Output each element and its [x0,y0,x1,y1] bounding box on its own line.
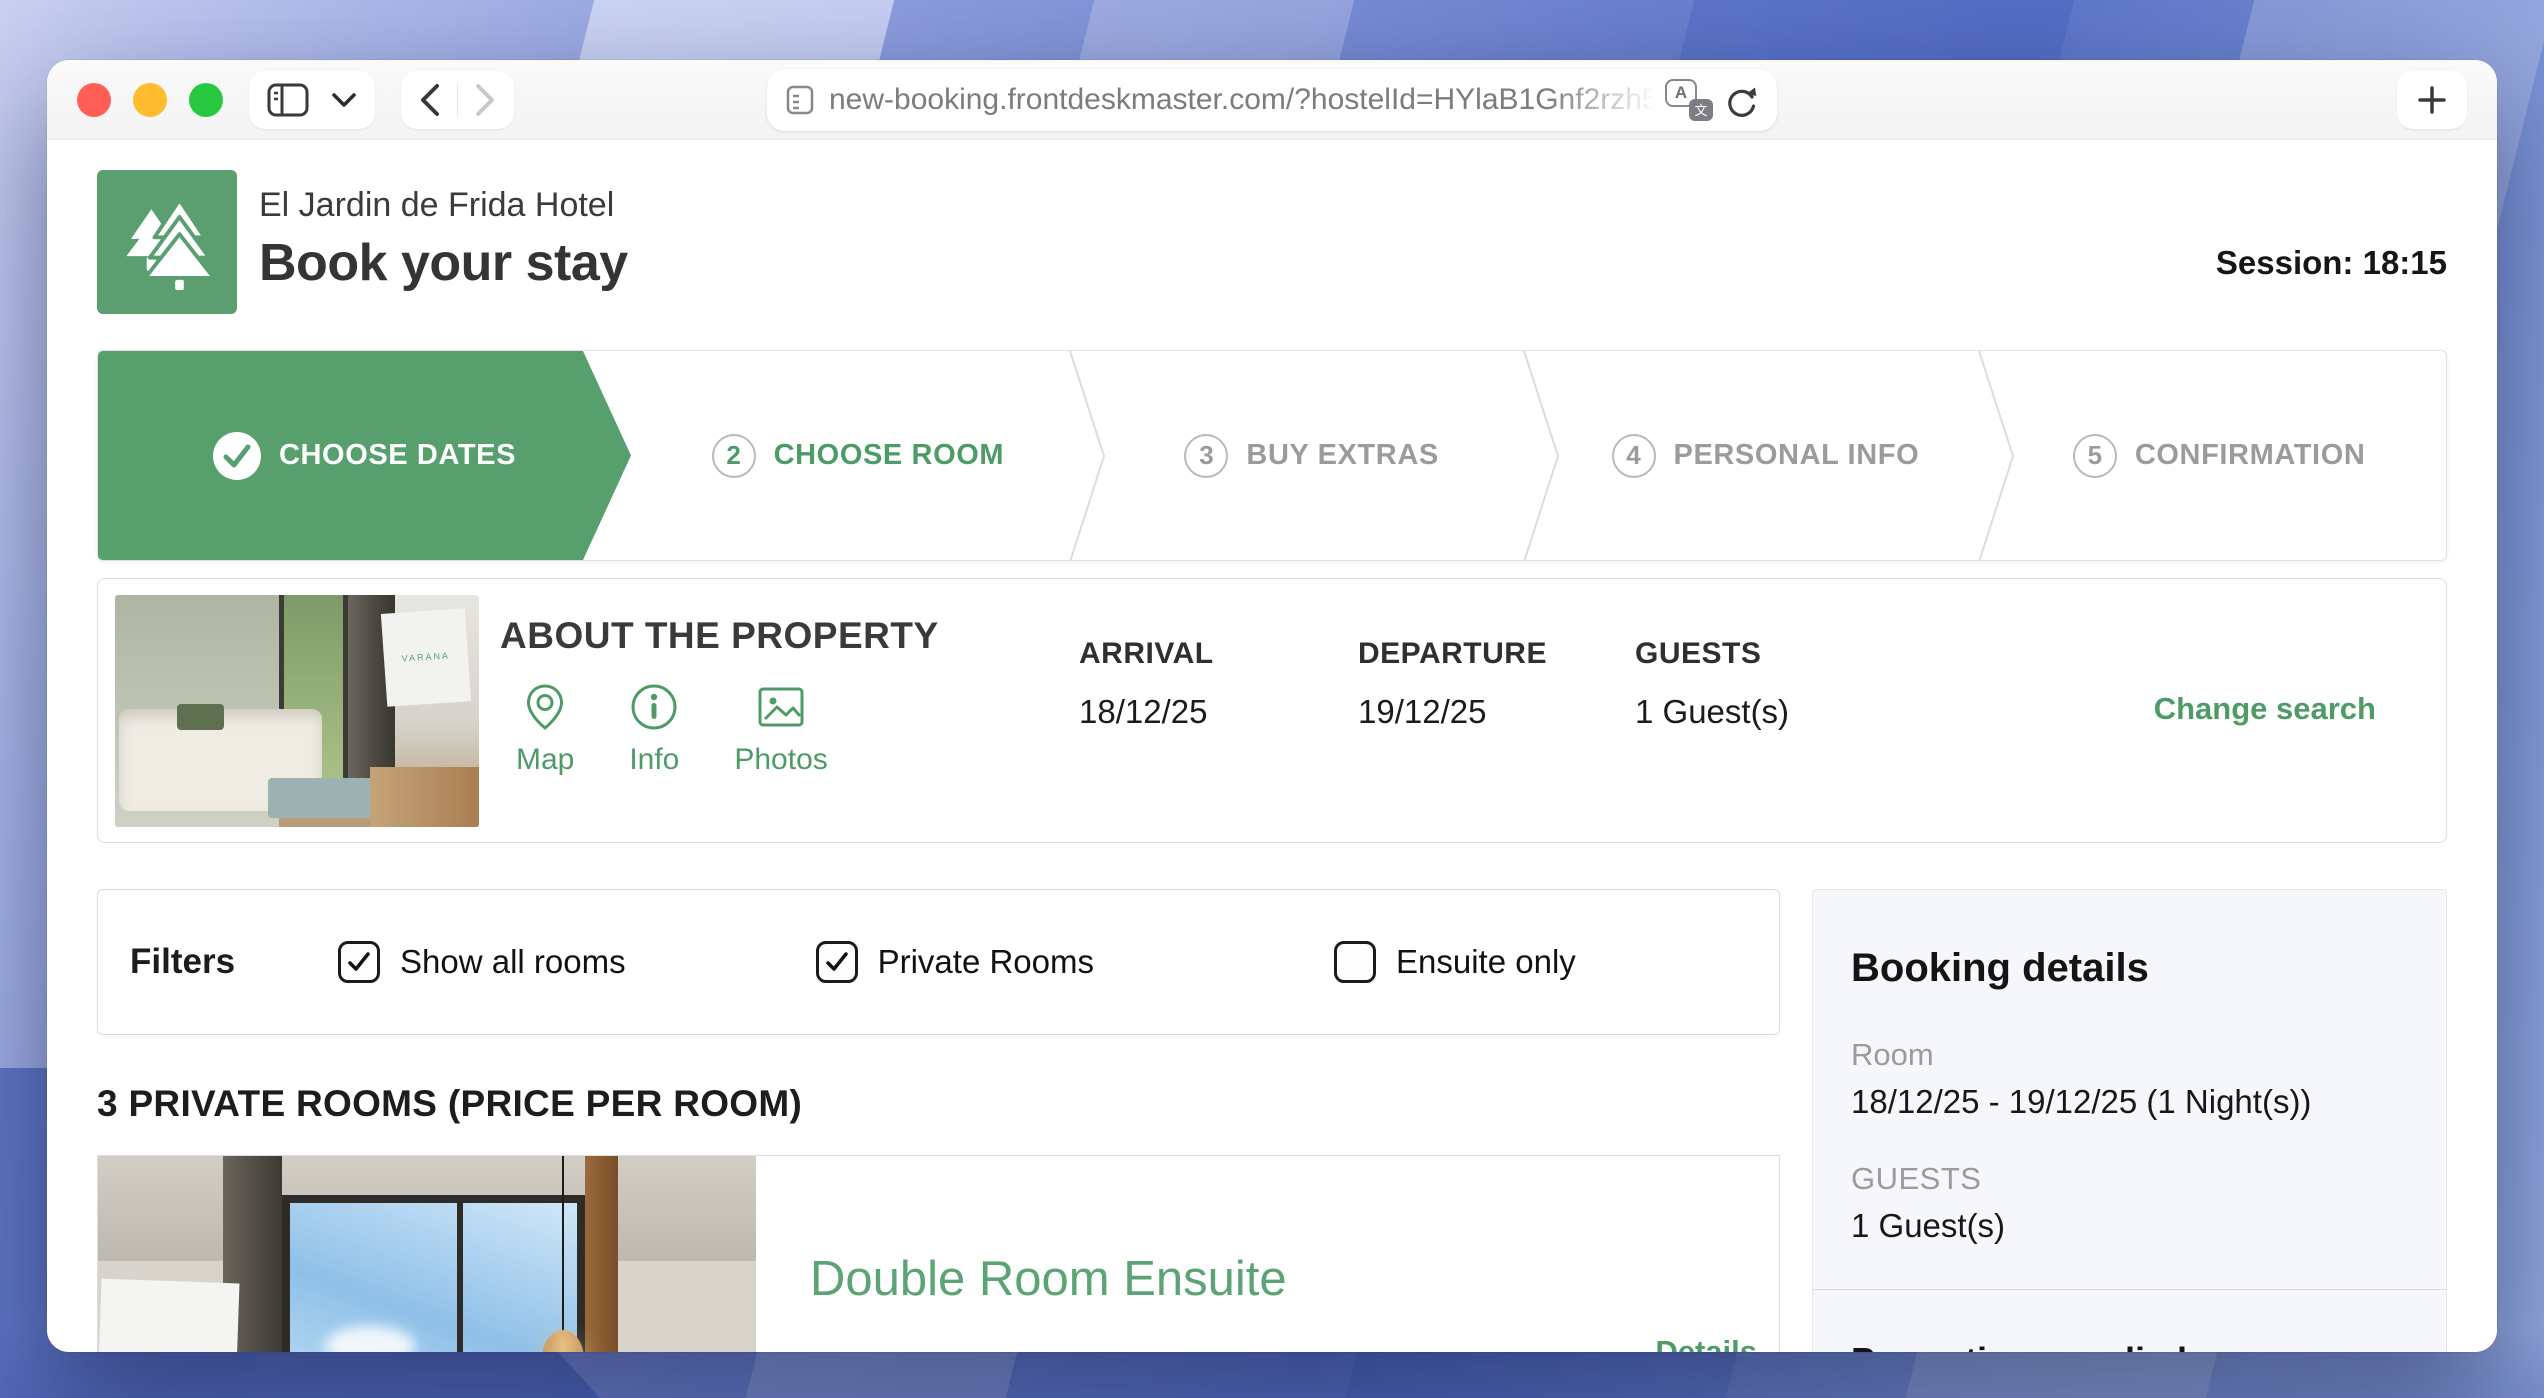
filters-title: Filters [130,942,338,982]
safari-window: new-booking.frontdeskmaster.com/?hostelI… [47,60,2497,1352]
filter-label: Private Rooms [878,943,1094,981]
property-title: ABOUT THE PROPERTY [500,615,939,657]
ensuite-only-checkbox[interactable] [1334,941,1376,983]
nav-button-group [401,71,514,129]
divider [1813,1289,2446,1290]
guests-value: 1 Guest(s) [1635,693,1789,731]
step-number: 2 [712,434,756,478]
page-icon[interactable] [785,84,815,116]
step-number: 3 [1184,434,1228,478]
room-details-link[interactable]: Details [1655,1334,1757,1352]
tab-chevron-down-icon[interactable] [331,92,357,108]
booking-page: El Jardin de Frida Hotel Book your stay … [47,140,2497,1352]
site-header: El Jardin de Frida Hotel Book your stay … [97,170,2447,320]
filter-label: Ensuite only [1396,943,1576,981]
minimize-window-button[interactable] [133,83,167,117]
step-label: CHOOSE DATES [279,439,516,472]
step-label: BUY EXTRAS [1246,439,1438,472]
guests-value: 1 Guest(s) [1851,1207,2408,1245]
guests-column: GUESTS 1 Guest(s) [1635,637,1789,731]
room-name[interactable]: Double Room Ensuite [810,1251,1287,1307]
arrival-label: ARRIVAL [1079,637,1214,671]
zoom-window-button[interactable] [189,83,223,117]
property-links: Map Info Photos [516,681,828,777]
step-label: CHOOSE ROOM [774,439,1005,472]
photos-link[interactable]: Photos [734,681,827,777]
step-personal-info[interactable]: 4 PERSONAL INFO [1539,351,1993,560]
property-photo[interactable]: VARANA [115,595,479,827]
filters-bar: Filters Show all rooms Private Rooms [97,889,1780,1035]
departure-column: DEPARTURE 19/12/25 [1358,637,1547,731]
rooms-heading: 3 PRIVATE ROOMS (PRICE PER ROOM) [97,1083,1780,1125]
step-label: CONFIRMATION [2135,439,2366,472]
address-bar[interactable]: new-booking.frontdeskmaster.com/?hostelI… [767,69,1777,131]
property-card: VARANA ABOUT THE PROPERTY Map [97,578,2447,843]
filter-ensuite-only: Ensuite only [1334,941,1576,983]
departure-value: 19/12/25 [1358,693,1547,731]
guests-label: GUESTS [1851,1161,2408,1197]
map-link[interactable]: Map [516,681,574,777]
hotel-logo [97,170,237,314]
filter-show-all-rooms: Show all rooms [338,941,626,983]
sidebar-tab-group [249,71,375,129]
browser-toolbar: new-booking.frontdeskmaster.com/?hostelI… [47,60,2497,140]
plus-icon [2417,85,2447,115]
filter-label: Show all rooms [400,943,626,981]
url-text[interactable]: new-booking.frontdeskmaster.com/?hostelI… [829,83,1665,117]
new-tab-button[interactable] [2397,71,2467,129]
promotions-header[interactable]: Promotions applied [1851,1340,2408,1352]
booking-details-panel: Booking details Room 18/12/25 - 19/12/25… [1812,889,2447,1352]
header-titles: El Jardin de Frida Hotel Book your stay [259,170,628,320]
guests-label: GUESTS [1635,637,1789,671]
info-icon [628,681,680,733]
map-pin-icon [519,681,571,733]
forward-icon[interactable] [474,83,496,117]
session-timer: Session: 18:15 [2216,244,2447,282]
translate-icon[interactable]: A 文 [1665,79,1713,121]
show-all-rooms-checkbox[interactable] [338,941,380,983]
back-icon[interactable] [419,83,441,117]
hotel-name: El Jardin de Frida Hotel [259,186,628,225]
room-card: VARANA Double Room Ensuite Details [97,1155,1780,1352]
room-photo[interactable]: VARANA [98,1156,756,1352]
page-title: Book your stay [259,233,628,293]
step-number: 5 [2073,434,2117,478]
change-search-link[interactable]: Change search [2154,691,2376,727]
step-choose-dates[interactable]: CHOOSE DATES [98,351,631,560]
room-dates-value: 18/12/25 - 19/12/25 (1 Night(s)) [1851,1083,2408,1121]
photo-brand-tv: VARANA [381,608,471,706]
departure-label: DEPARTURE [1358,637,1547,671]
step-buy-extras[interactable]: 3 BUY EXTRAS [1085,351,1539,560]
promotions-label: Promotions applied [1851,1340,2378,1352]
photos-icon [753,681,809,733]
close-window-button[interactable] [77,83,111,117]
step-number: 4 [1612,434,1656,478]
booking-stepper: CHOOSE DATES 2 CHOOSE ROOM 3 BUY EXTRAS … [97,350,2447,561]
step-label: PERSONAL INFO [1674,439,1920,472]
step-choose-room[interactable]: 2 CHOOSE ROOM [631,351,1085,560]
info-link[interactable]: Info [628,681,680,777]
pine-trees-icon [117,190,217,294]
room-label: Room [1851,1037,2408,1073]
arrival-column: ARRIVAL 18/12/25 [1079,637,1214,731]
private-rooms-checkbox[interactable] [816,941,858,983]
filter-private-rooms: Private Rooms [816,941,1094,983]
rooms-column: Filters Show all rooms Private Rooms [97,889,1780,1352]
photo-brand-panel: VARANA [98,1278,240,1352]
sidebar-icon[interactable] [267,83,309,117]
step-confirmation[interactable]: 5 CONFIRMATION [1992,351,2446,560]
desktop-wallpaper: new-booking.frontdeskmaster.com/?hostelI… [0,0,2544,1398]
arrival-value: 18/12/25 [1079,693,1214,731]
booking-details-title: Booking details [1851,946,2408,991]
check-icon [213,432,261,480]
reload-icon[interactable] [1723,82,1759,118]
